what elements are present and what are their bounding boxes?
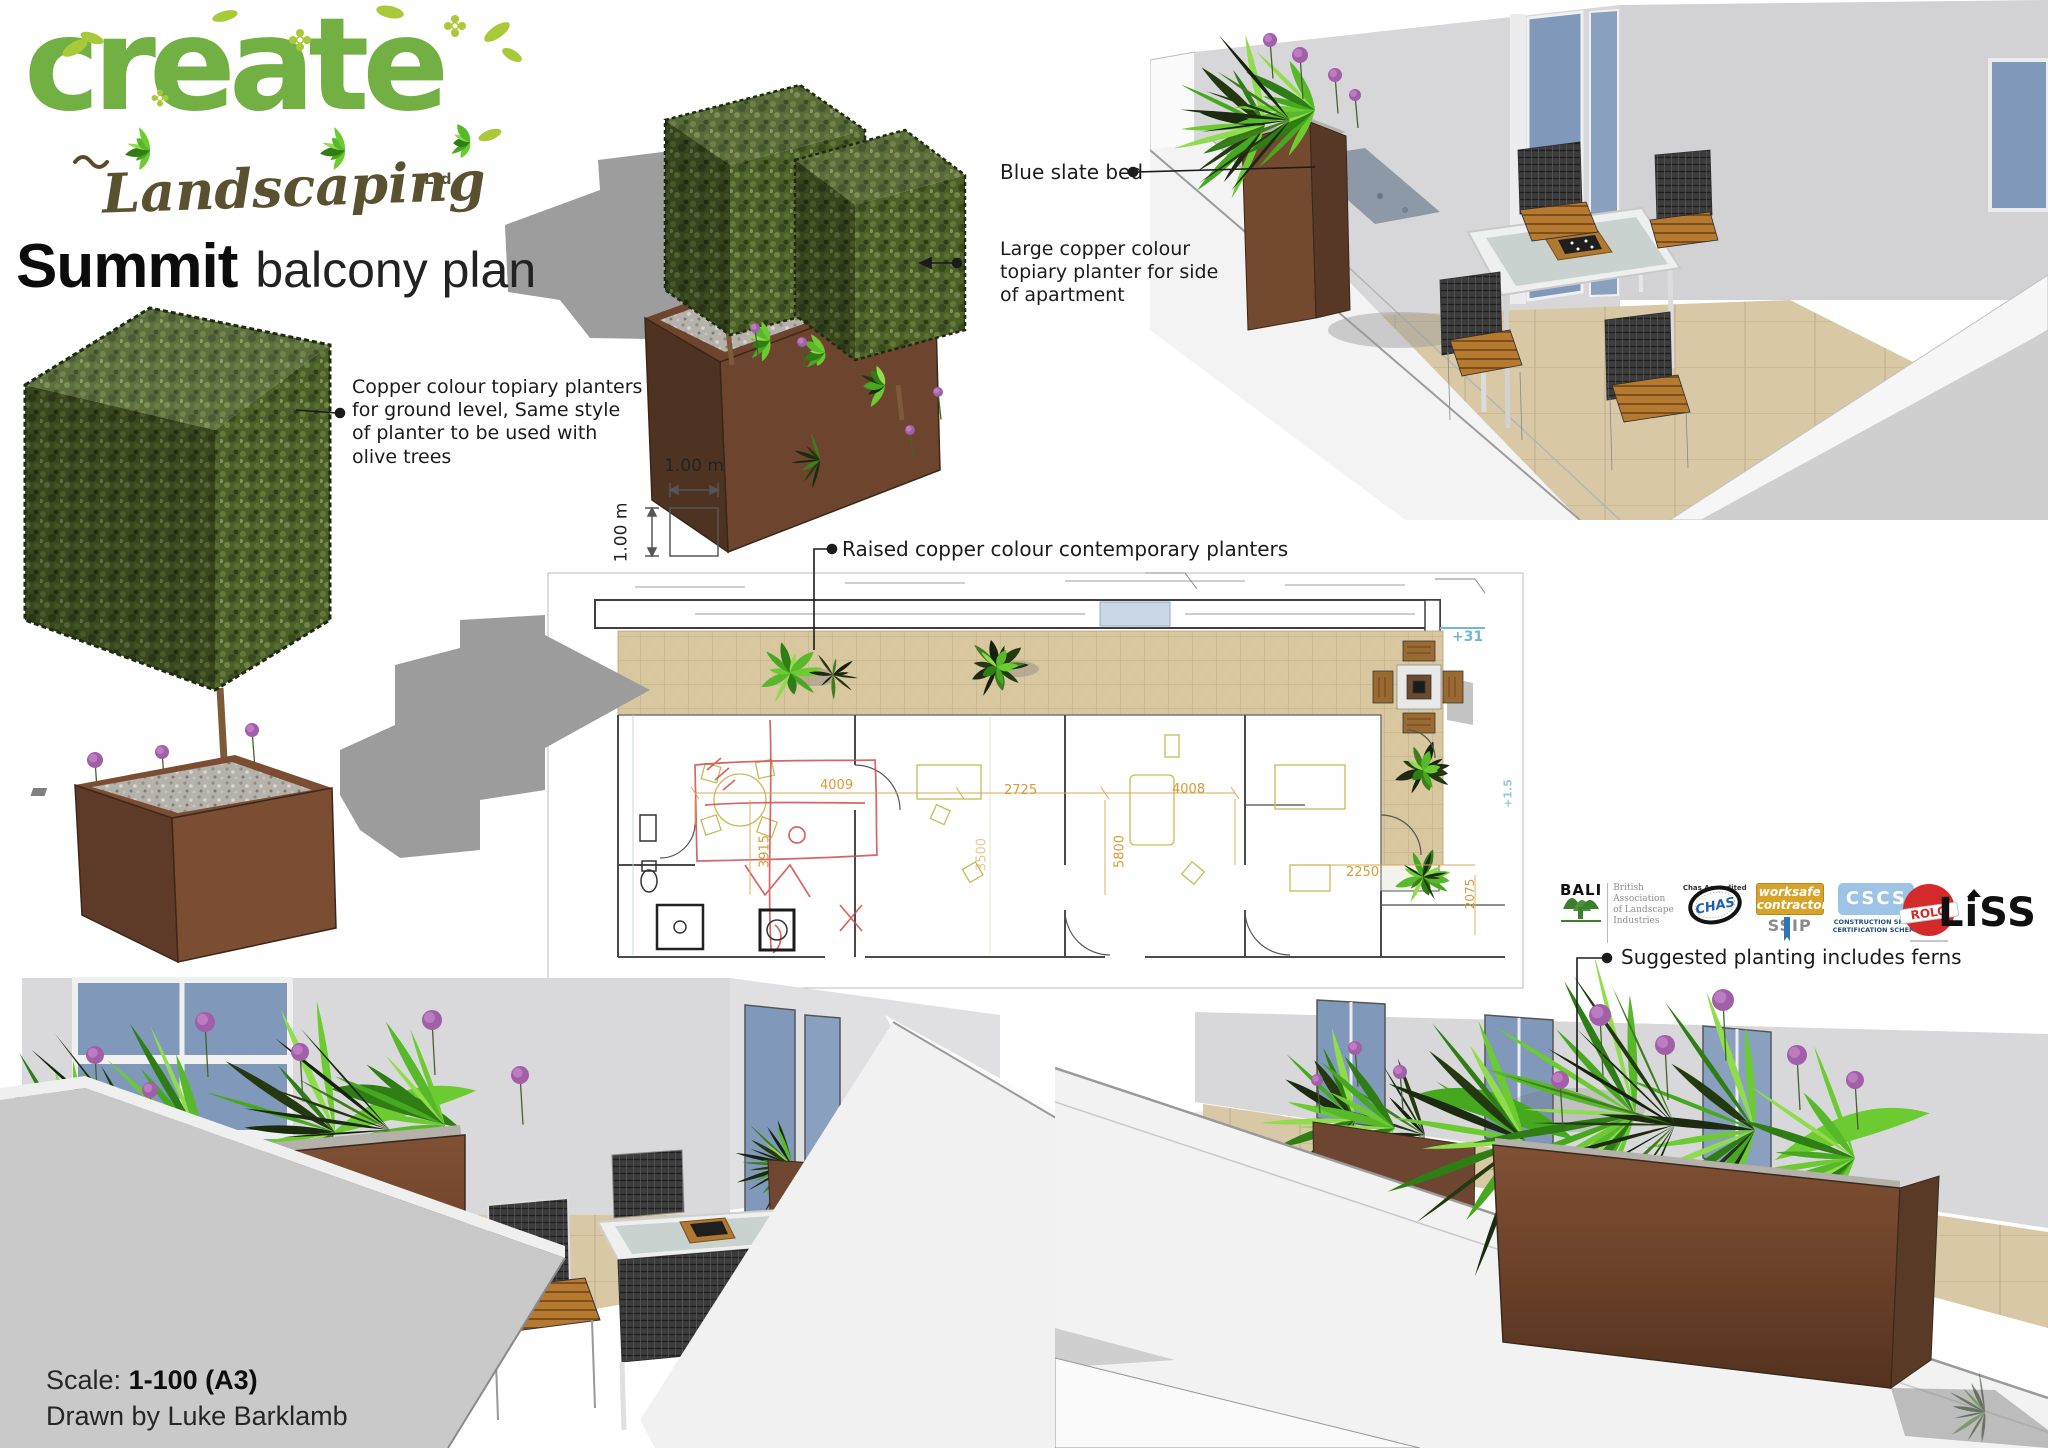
liss-logo: LiSS [1938, 883, 2037, 933]
glass-doors [745, 1005, 840, 1215]
lower-pavement [1700, 330, 2048, 520]
dining-table-set [478, 1150, 905, 1430]
window [75, 980, 290, 1215]
ssip-ribbon-icon [1784, 917, 1790, 937]
plan-dim: 3500 [976, 825, 989, 885]
foliage [0, 1001, 529, 1299]
blue-slate-bed [1300, 148, 1440, 224]
side-wall [1620, 0, 2048, 300]
scale-value: 1-100 (A3) [129, 1365, 258, 1395]
copper-cube-planter [31, 755, 336, 962]
chas-logo: CHAS Chas Accredited [1683, 883, 1747, 892]
worksafe-logo: worksafe contractor SSIP [1756, 883, 1824, 934]
brand-name: create [24, 2, 442, 130]
plan-plants [759, 639, 1450, 903]
grasses [87, 804, 265, 887]
planter-foliage [1173, 33, 1361, 200]
back-wall [22, 978, 730, 1215]
balcony-floor [1195, 300, 2048, 520]
tile-walkway [1203, 1104, 2048, 1328]
plan-dim: 4009 [820, 779, 853, 792]
walkway [1670, 275, 2048, 520]
small-planter [735, 1120, 815, 1216]
foreground-planter [1386, 960, 2048, 1448]
ssip-logo: SSIP [1768, 918, 1812, 934]
cube-topiary-right [795, 130, 965, 420]
table-silhouette [1085, 1125, 1233, 1222]
copper-trough-planter [645, 240, 940, 552]
balcony-tiles [618, 631, 1443, 865]
back-wall [1195, 5, 1620, 320]
allium-flowers [87, 723, 259, 821]
scale-square [645, 483, 718, 556]
back-wall [1195, 1012, 2048, 1228]
plan-type: balcony plan [255, 245, 536, 295]
render-balcony-view-right [1055, 960, 2048, 1448]
scale-square-width-label: 1.00 m [656, 458, 732, 475]
annotation-large-planter: Large copper colour topiary planter for … [1000, 238, 1218, 308]
far-window [1990, 60, 2048, 210]
plan-level-marker: +1.5 [1503, 764, 1514, 824]
scale-note: Scale: 1-100 (A3) [46, 1362, 348, 1398]
parapet-wall [1055, 1068, 2048, 1448]
liss-hat-icon [1967, 889, 1981, 897]
drawn-by: Drawn by Luke Barklamb [46, 1398, 348, 1434]
end-planter-box [1381, 865, 1439, 891]
floor-plan [545, 565, 1535, 1000]
render-corner-balcony [1150, 0, 2048, 520]
scale-label: Scale: [46, 1365, 121, 1395]
planter-shadow-overlay [300, 600, 700, 880]
planter-shadow [505, 148, 782, 340]
interior-walls [618, 715, 1505, 957]
cube-topiary-left [665, 85, 865, 365]
plan-dim: 2075 [1464, 864, 1476, 924]
render-large-topiary-planter [470, 0, 1070, 600]
glass-doors [1317, 1000, 1771, 1178]
copper-tower-planter [1242, 118, 1350, 330]
foliage [1386, 960, 1930, 1290]
annotation-raised-planters: Raised copper colour contemporary plante… [842, 537, 1288, 561]
floor [22, 1190, 1000, 1315]
furniture [701, 735, 1345, 891]
scale-square-height-label: 1.00 m [614, 495, 631, 571]
drawing-info: Scale: 1-100 (A3) Drawn by Luke Barklamb [46, 1362, 348, 1434]
doors [660, 730, 1435, 955]
plan-level-marker: +31 [1452, 630, 1483, 644]
copper-trough-planter [0, 1001, 529, 1395]
plan-dim: 2250 [1346, 866, 1379, 879]
plan-dim: 3915 [759, 822, 772, 882]
svg-text:CHAS: CHAS [1694, 895, 1736, 918]
project-name: Summit [16, 236, 237, 298]
accreditation-logos: BALI British Association of Landscape In… [1560, 883, 2048, 961]
bali-logo: BALI British Association of Landscape In… [1560, 883, 1674, 943]
plan-dim: 4008 [1172, 783, 1205, 796]
page-title: Summit balcony plan [16, 236, 536, 298]
plan-dim: 5800 [1114, 822, 1127, 882]
mid-planter [1261, 1027, 1475, 1290]
plan-table-set [1373, 641, 1473, 733]
dining-table [1468, 208, 1680, 428]
cscs-logo: CSCS CONSTRUCTION SKILLS CERTIFICATION S… [1833, 883, 1920, 934]
presentation-sheet: create Landscaping Ltd Summit balcony pl… [0, 0, 2048, 1448]
plan-dim: 2725 [1004, 784, 1037, 797]
external-wall [595, 600, 1440, 658]
underplanting [747, 321, 943, 489]
annotation-blue-slate: Blue slate bed [1000, 160, 1143, 184]
chairs [1440, 142, 1718, 470]
plan-frame [548, 573, 1523, 988]
door-opening [1100, 602, 1170, 626]
red-sketch [695, 720, 877, 953]
far-parapet [1055, 1108, 1283, 1228]
parapet-wall [1150, 140, 1580, 520]
parapet-wall [640, 1015, 1090, 1448]
glass-door [1528, 12, 1582, 300]
cube-topiary [25, 308, 330, 795]
brand-suffix: Ltd [424, 172, 451, 187]
corner-parapet [1055, 1358, 1420, 1448]
annotation-ground-planters: Copper colour topiary planters for groun… [352, 376, 642, 469]
